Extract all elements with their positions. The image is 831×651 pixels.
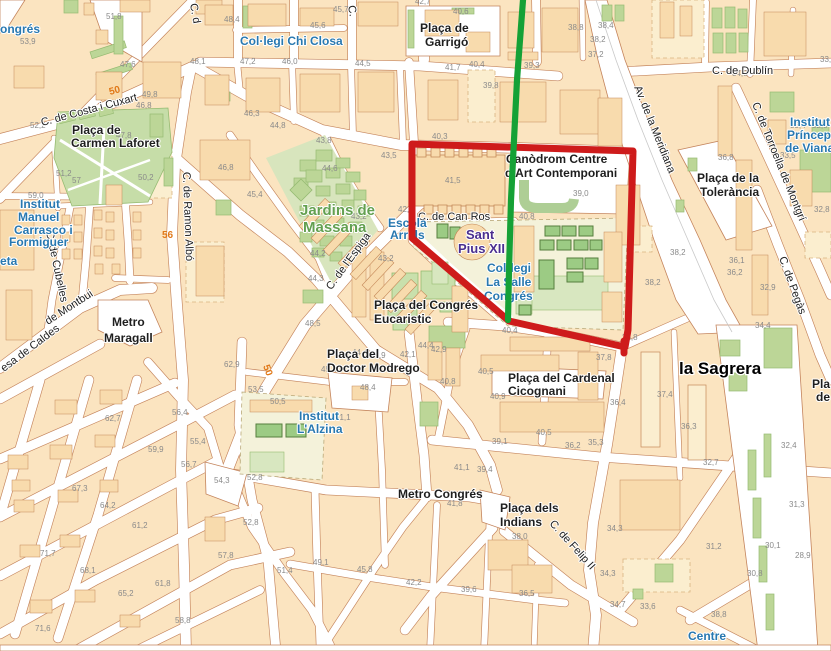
svg-text:Maragall: Maragall (104, 331, 153, 345)
svg-text:42,9: 42,9 (431, 345, 447, 354)
svg-text:44,5: 44,5 (355, 59, 371, 68)
svg-text:Indians: Indians (500, 515, 542, 529)
svg-text:32,4: 32,4 (781, 441, 797, 450)
svg-text:40,4: 40,4 (502, 326, 518, 335)
svg-text:55,4: 55,4 (190, 437, 206, 446)
svg-text:36,2: 36,2 (727, 268, 743, 277)
svg-text:52,8: 52,8 (243, 518, 259, 527)
svg-text:57,8: 57,8 (218, 551, 234, 560)
svg-text:Eucaristic: Eucaristic (374, 312, 432, 326)
svg-text:de: de (816, 390, 830, 404)
svg-text:40,9: 40,9 (490, 392, 506, 401)
svg-text:34,4: 34,4 (755, 321, 771, 330)
svg-text:Metro Congrés: Metro Congrés (398, 487, 483, 501)
svg-text:32,9: 32,9 (760, 283, 776, 292)
svg-text:Arrels: Arrels (390, 228, 425, 242)
svg-text:Tolerància: Tolerància (700, 185, 759, 199)
svg-text:41,7: 41,7 (445, 63, 461, 72)
svg-text:53,9: 53,9 (20, 37, 36, 46)
svg-text:48,1: 48,1 (190, 57, 206, 66)
svg-text:Canòdrom Centre: Canòdrom Centre (506, 152, 608, 166)
svg-text:la Sagrera: la Sagrera (679, 359, 762, 378)
svg-text:43,5: 43,5 (381, 151, 397, 160)
svg-text:39,0: 39,0 (573, 189, 589, 198)
svg-text:37,4: 37,4 (657, 390, 673, 399)
svg-text:32,8: 32,8 (814, 205, 830, 214)
svg-text:48,4: 48,4 (360, 383, 376, 392)
svg-text:40,6: 40,6 (453, 7, 469, 16)
svg-text:Metro: Metro (112, 315, 145, 329)
svg-text:Massana: Massana (303, 219, 367, 236)
svg-text:28,9: 28,9 (795, 551, 811, 560)
svg-text:38,2: 38,2 (670, 248, 686, 257)
svg-text:46,8: 46,8 (218, 163, 234, 172)
svg-text:45,4: 45,4 (247, 190, 263, 199)
svg-text:41,1: 41,1 (454, 463, 470, 472)
svg-text:44,3: 44,3 (308, 274, 324, 283)
svg-text:38,2: 38,2 (590, 35, 606, 44)
svg-text:Centre: Centre (688, 629, 726, 643)
svg-text:Doctor Modrego: Doctor Modrego (327, 361, 420, 375)
svg-text:58,8: 58,8 (175, 616, 191, 625)
svg-text:34,3: 34,3 (607, 524, 623, 533)
svg-text:46,3: 46,3 (244, 109, 260, 118)
svg-text:37,8: 37,8 (596, 353, 612, 362)
svg-text:44,6: 44,6 (322, 164, 338, 173)
svg-text:52,8: 52,8 (247, 473, 263, 482)
svg-text:42,7: 42,7 (415, 0, 431, 6)
svg-text:51,8: 51,8 (106, 12, 122, 21)
svg-text:36,8: 36,8 (718, 153, 734, 162)
svg-text:41,5: 41,5 (445, 176, 461, 185)
svg-text:71,6: 71,6 (35, 624, 51, 633)
svg-text:62,7: 62,7 (105, 414, 121, 423)
svg-text:Plaça de: Plaça de (72, 123, 121, 137)
svg-text:37,2: 37,2 (588, 50, 604, 59)
svg-text:64,2: 64,2 (100, 501, 116, 510)
svg-text:61,2: 61,2 (132, 521, 148, 530)
svg-text:Jardins de: Jardins de (300, 202, 375, 219)
svg-text:48,5: 48,5 (305, 319, 321, 328)
svg-text:39,6: 39,6 (461, 585, 477, 594)
svg-text:71,7: 71,7 (40, 549, 56, 558)
svg-text:32,7: 32,7 (703, 458, 719, 467)
svg-text:Cicognani: Cicognani (508, 384, 566, 398)
svg-text:Carmen Laforet: Carmen Laforet (71, 136, 160, 150)
svg-text:40,5: 40,5 (478, 367, 494, 376)
svg-text:Plaça de: Plaça de (420, 21, 469, 35)
svg-text:54,3: 54,3 (214, 476, 230, 485)
svg-text:Plaça del Cardenal: Plaça del Cardenal (508, 371, 615, 385)
svg-text:59,9: 59,9 (148, 445, 164, 454)
svg-text:56,7: 56,7 (181, 460, 197, 469)
svg-text:56,4: 56,4 (172, 408, 188, 417)
svg-text:Institut: Institut (20, 197, 60, 211)
svg-text:57: 57 (72, 176, 81, 185)
svg-text:30,1: 30,1 (765, 541, 781, 550)
svg-text:38,2: 38,2 (645, 278, 661, 287)
svg-text:31,3: 31,3 (789, 500, 805, 509)
svg-text:38,8: 38,8 (711, 610, 727, 619)
svg-text:30,8: 30,8 (747, 569, 763, 578)
svg-text:C. de Can Ros: C. de Can Ros (418, 211, 491, 223)
svg-text:47,2: 47,2 (240, 57, 256, 66)
svg-text:38,0: 38,0 (512, 532, 528, 541)
svg-text:38,4: 38,4 (598, 21, 614, 30)
svg-text:Pius XII: Pius XII (458, 241, 505, 256)
svg-text:40,8: 40,8 (440, 377, 456, 386)
svg-text:53,5: 53,5 (248, 385, 264, 394)
svg-text:Col·legi Chi Closa: Col·legi Chi Closa (240, 34, 343, 48)
svg-text:Plaça del Congrés: Plaça del Congrés (374, 298, 478, 312)
svg-text:36,1: 36,1 (729, 256, 745, 265)
svg-text:eta: eta (0, 254, 18, 268)
svg-text:68,1: 68,1 (80, 566, 96, 575)
svg-text:40,3: 40,3 (432, 132, 448, 141)
svg-text:36,2: 36,2 (565, 441, 581, 450)
svg-text:56: 56 (162, 230, 174, 241)
svg-text:35,3: 35,3 (588, 438, 604, 447)
svg-text:38,8: 38,8 (568, 23, 584, 32)
svg-text:49,1: 49,1 (313, 558, 329, 567)
svg-text:34,3: 34,3 (600, 569, 616, 578)
svg-text:43,2: 43,2 (378, 254, 394, 263)
svg-text:50,2: 50,2 (138, 173, 154, 182)
svg-text:51,4: 51,4 (277, 566, 293, 575)
svg-text:Príncep: Príncep (787, 128, 831, 142)
svg-text:43,8: 43,8 (316, 136, 332, 145)
svg-text:39,1: 39,1 (492, 437, 508, 446)
svg-text:Plaça dels: Plaça dels (500, 501, 559, 515)
svg-text:48,4: 48,4 (224, 15, 240, 24)
svg-text:39,4: 39,4 (477, 465, 493, 474)
svg-text:46,0: 46,0 (282, 57, 298, 66)
svg-text:Plaça del: Plaça del (327, 347, 379, 361)
svg-text:42,1: 42,1 (400, 350, 416, 359)
svg-text:L'Alzina: L'Alzina (297, 422, 343, 436)
svg-text:36,3: 36,3 (681, 422, 697, 431)
svg-text:45,6: 45,6 (310, 21, 326, 30)
svg-text:46,8: 46,8 (136, 101, 152, 110)
svg-text:ongrés: ongrés (0, 22, 40, 36)
svg-text:Plaça de la: Plaça de la (697, 171, 759, 185)
svg-text:50,5: 50,5 (270, 397, 286, 406)
svg-text:Sant: Sant (466, 227, 495, 242)
svg-text:C. de Dublín: C. de Dublín (712, 65, 773, 77)
svg-text:de Viana: de Viana (785, 141, 831, 155)
svg-text:40,5: 40,5 (536, 428, 552, 437)
svg-text:31,2: 31,2 (706, 542, 722, 551)
svg-text:51,2: 51,2 (56, 169, 72, 178)
svg-text:39,8: 39,8 (483, 81, 499, 90)
svg-text:Pla: Pla (812, 377, 830, 391)
svg-text:62,9: 62,9 (224, 360, 240, 369)
svg-text:36,5: 36,5 (519, 589, 535, 598)
svg-text:Institut: Institut (299, 409, 339, 423)
svg-text:33,6: 33,6 (640, 602, 656, 611)
svg-text:65,2: 65,2 (118, 589, 134, 598)
svg-text:39,3: 39,3 (524, 61, 540, 70)
svg-text:d'Art Contemporani: d'Art Contemporani (505, 166, 617, 180)
svg-text:67,3: 67,3 (72, 484, 88, 493)
svg-text:47,6: 47,6 (120, 60, 136, 69)
svg-text:33,0: 33,0 (820, 55, 831, 64)
svg-text:42,2: 42,2 (406, 578, 422, 587)
svg-text:34,7: 34,7 (610, 600, 626, 609)
svg-text:40,4: 40,4 (469, 60, 485, 69)
svg-text:49,8: 49,8 (142, 90, 158, 99)
svg-text:40,8: 40,8 (519, 212, 535, 221)
svg-text:Manuel: Manuel (18, 210, 59, 224)
svg-text:Formiguer: Formiguer (9, 235, 69, 249)
svg-text:Garrigó: Garrigó (425, 35, 468, 49)
svg-text:44,8: 44,8 (270, 121, 286, 130)
svg-text:C.: C. (345, 4, 359, 17)
svg-text:61,8: 61,8 (155, 579, 171, 588)
svg-text:36,4: 36,4 (610, 398, 626, 407)
svg-text:45,8: 45,8 (357, 565, 373, 574)
svg-text:44,2: 44,2 (310, 249, 326, 258)
svg-text:Institut: Institut (790, 115, 830, 129)
